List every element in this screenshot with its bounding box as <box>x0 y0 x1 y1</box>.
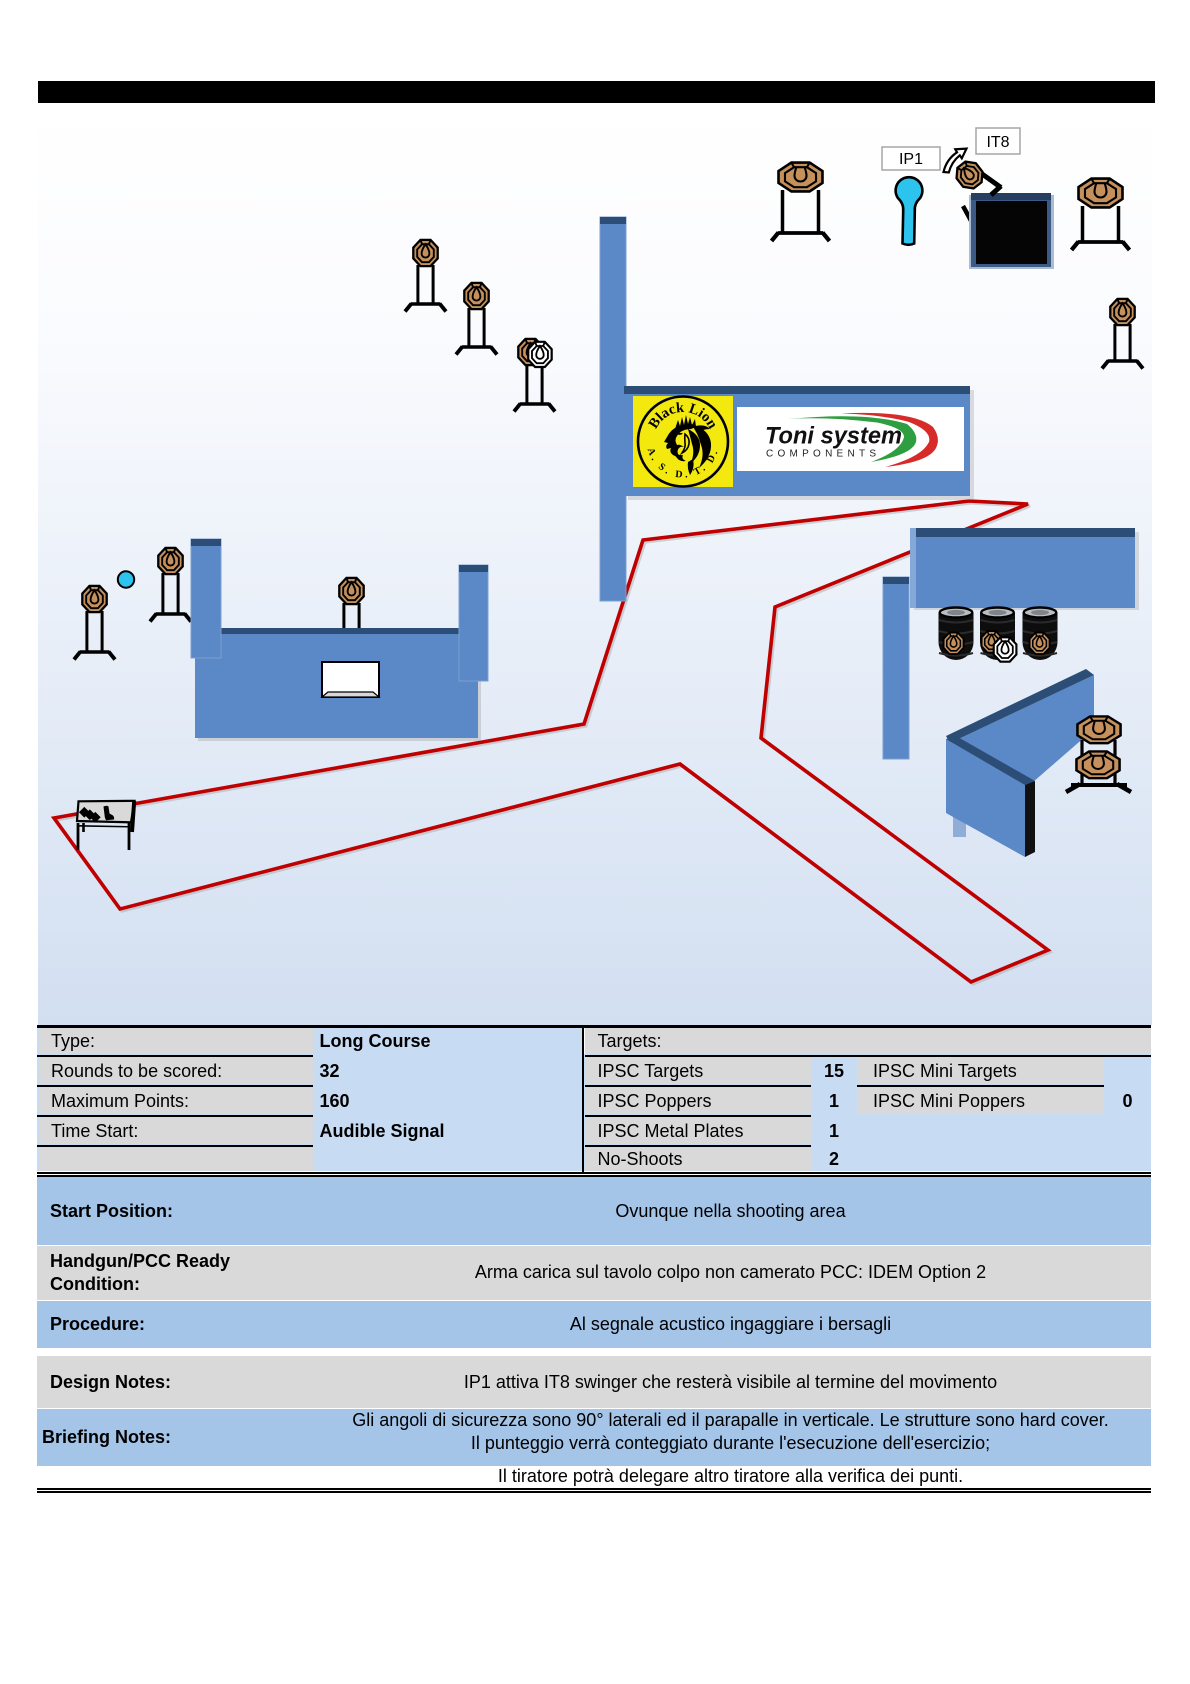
svg-text:Toni system: Toni system <box>765 423 902 450</box>
svg-text:IT8: IT8 <box>986 134 1009 151</box>
svg-text:IP1: IP1 <box>899 151 923 168</box>
